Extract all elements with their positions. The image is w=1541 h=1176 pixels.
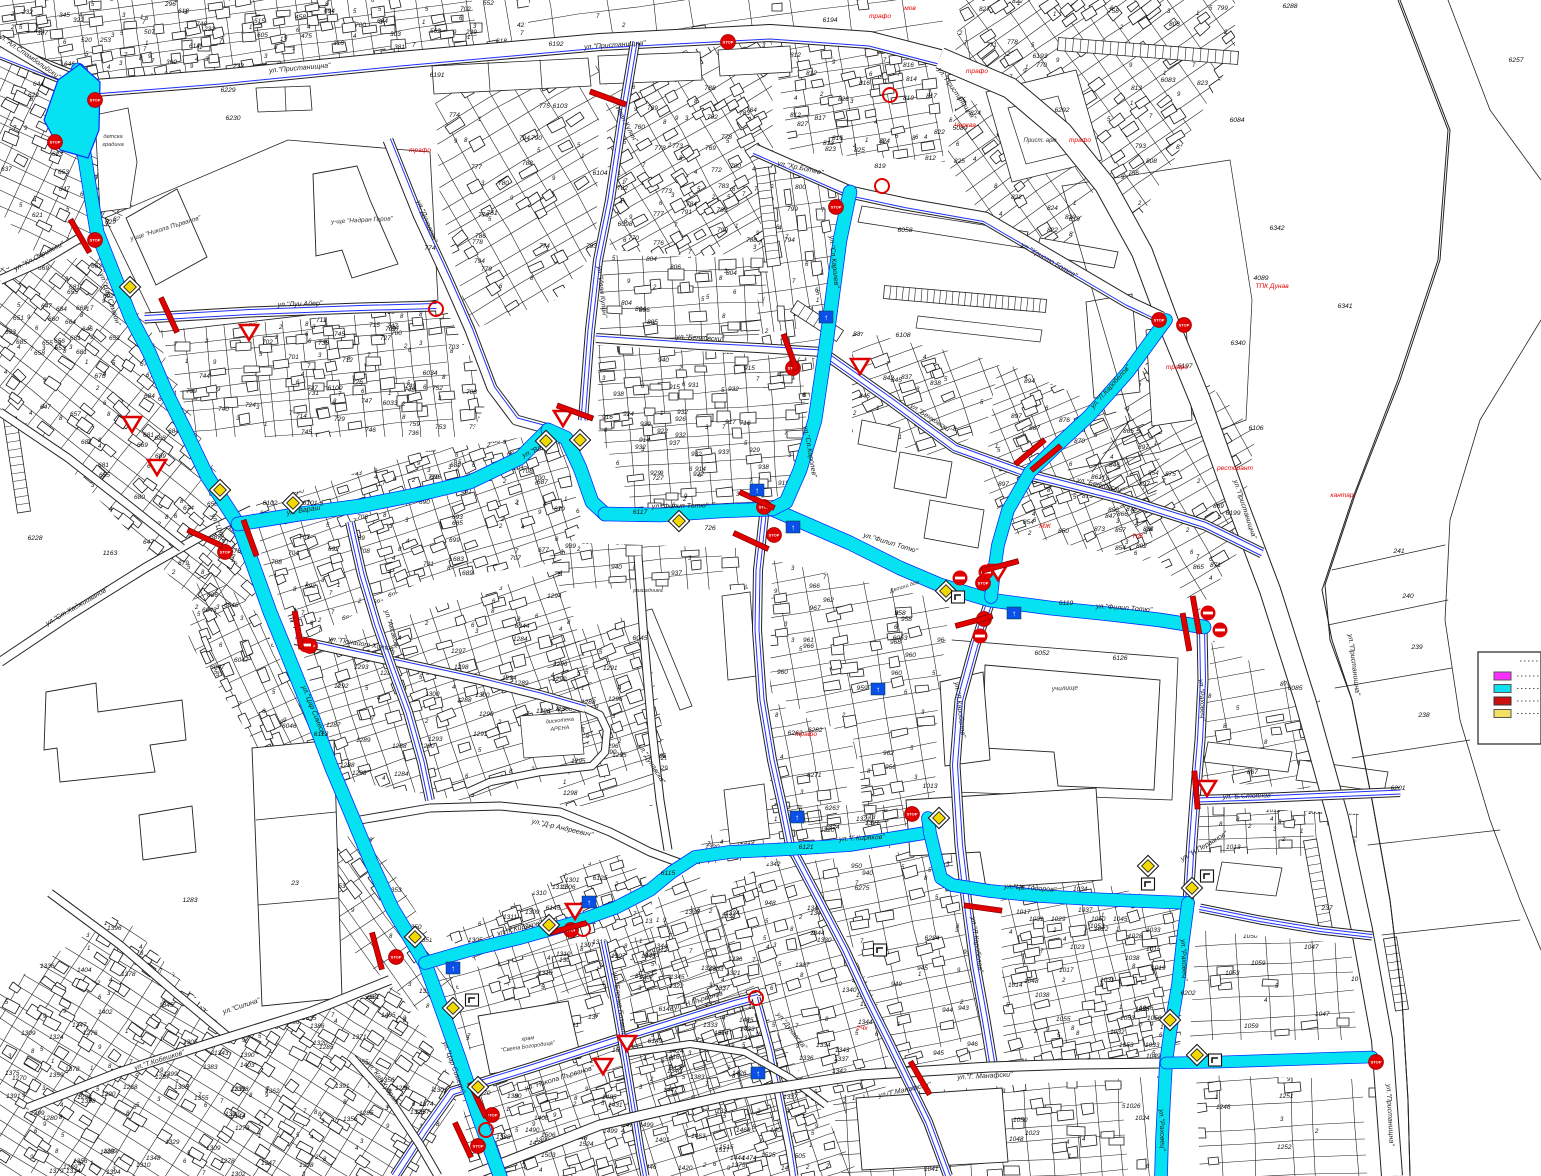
svg-text:822: 822 bbox=[1012, 0, 1023, 5]
svg-text:812: 812 bbox=[806, 70, 817, 77]
svg-text:684: 684 bbox=[56, 306, 67, 313]
svg-text:651: 651 bbox=[13, 315, 24, 322]
svg-text:1307: 1307 bbox=[611, 953, 626, 960]
svg-text:685: 685 bbox=[452, 520, 463, 527]
svg-text:1524: 1524 bbox=[579, 1141, 594, 1148]
svg-text:871: 871 bbox=[1210, 562, 1221, 569]
svg-text:1163: 1163 bbox=[103, 550, 118, 557]
svg-text:6145: 6145 bbox=[545, 905, 560, 912]
svg-text:939: 939 bbox=[565, 543, 576, 550]
svg-text:1024: 1024 bbox=[1135, 1115, 1150, 1122]
svg-text:1388: 1388 bbox=[496, 1134, 511, 1141]
svg-text:812: 812 bbox=[790, 52, 801, 59]
svg-text:6202: 6202 bbox=[1180, 990, 1195, 997]
svg-text:1: 1 bbox=[337, 583, 340, 589]
svg-text:кантар: кантар bbox=[1330, 492, 1353, 499]
svg-text:1: 1 bbox=[160, 1037, 163, 1043]
svg-text:1273: 1273 bbox=[235, 1125, 250, 1132]
svg-text:1292: 1292 bbox=[334, 683, 349, 690]
svg-text:2: 2 bbox=[403, 344, 408, 350]
svg-text:1048: 1048 bbox=[1009, 1136, 1024, 1143]
svg-text:240: 240 bbox=[1401, 593, 1414, 600]
svg-text:1047: 1047 bbox=[1315, 1011, 1330, 1018]
svg-text:778: 778 bbox=[721, 134, 732, 141]
svg-text:1330: 1330 bbox=[817, 937, 832, 944]
svg-text:1433: 1433 bbox=[740, 1026, 755, 1033]
svg-text:1: 1 bbox=[264, 422, 267, 428]
svg-text:1310: 1310 bbox=[556, 951, 571, 958]
svg-text:6046: 6046 bbox=[282, 723, 297, 730]
svg-text:6228: 6228 bbox=[27, 535, 42, 542]
svg-text:1: 1 bbox=[1101, 913, 1104, 919]
svg-text:1291: 1291 bbox=[473, 731, 488, 738]
svg-text:2: 2 bbox=[204, 339, 209, 345]
svg-text:710: 710 bbox=[428, 474, 439, 481]
svg-text:2: 2 bbox=[841, 713, 846, 719]
svg-text:1345: 1345 bbox=[670, 974, 685, 981]
svg-text:2: 2 bbox=[314, 1155, 319, 1161]
svg-text:795: 795 bbox=[716, 207, 728, 214]
svg-text:938: 938 bbox=[758, 464, 769, 471]
svg-text:681: 681 bbox=[69, 284, 80, 291]
svg-text:1026: 1026 bbox=[1126, 1103, 1141, 1110]
svg-text:1: 1 bbox=[125, 1029, 128, 1035]
svg-text:2: 2 bbox=[455, 466, 460, 472]
svg-text:870: 870 bbox=[1074, 438, 1085, 445]
svg-text:1: 1 bbox=[90, 1161, 93, 1167]
svg-text:816: 816 bbox=[903, 62, 914, 69]
svg-text:разсадника: разсадника bbox=[632, 588, 663, 594]
svg-text:1403: 1403 bbox=[240, 1062, 255, 1069]
svg-text:1359: 1359 bbox=[49, 1072, 64, 1079]
svg-text:669: 669 bbox=[76, 305, 87, 312]
svg-text:916: 916 bbox=[602, 414, 613, 421]
svg-text:6034: 6034 bbox=[422, 370, 437, 377]
svg-text:700: 700 bbox=[355, 22, 366, 29]
svg-text:↑: ↑ bbox=[876, 685, 880, 694]
svg-text:1032: 1032 bbox=[1110, 1029, 1125, 1036]
svg-text:1290: 1290 bbox=[479, 711, 494, 718]
svg-text:↑: ↑ bbox=[451, 964, 455, 973]
svg-text:819: 819 bbox=[903, 95, 914, 102]
svg-text:1416: 1416 bbox=[665, 1054, 680, 1061]
svg-text:940: 940 bbox=[611, 564, 622, 571]
svg-text:681: 681 bbox=[143, 432, 154, 439]
svg-text:758: 758 bbox=[1108, 8, 1119, 15]
svg-text:869: 869 bbox=[1213, 503, 1224, 510]
svg-text:1: 1 bbox=[249, 25, 252, 31]
svg-text:1: 1 bbox=[660, 411, 663, 417]
svg-text:1302: 1302 bbox=[231, 1171, 246, 1176]
svg-text:776: 776 bbox=[653, 240, 664, 247]
svg-text:674: 674 bbox=[183, 505, 194, 512]
svg-text:2: 2 bbox=[819, 92, 824, 98]
svg-text:805: 805 bbox=[647, 319, 658, 326]
svg-text:1: 1 bbox=[596, 967, 599, 973]
svg-text:6284: 6284 bbox=[924, 935, 939, 942]
svg-text:1285: 1285 bbox=[359, 1110, 374, 1117]
svg-text:1: 1 bbox=[51, 1059, 54, 1065]
svg-text:676: 676 bbox=[94, 373, 106, 380]
svg-text:ТПК Дунав: ТПК Дунав bbox=[1255, 283, 1289, 290]
svg-text:232: 232 bbox=[21, 9, 33, 16]
svg-text:1: 1 bbox=[388, 391, 391, 397]
svg-text:770: 770 bbox=[1036, 62, 1047, 69]
svg-text:1325: 1325 bbox=[410, 1109, 425, 1116]
svg-text:637: 637 bbox=[1, 166, 12, 173]
svg-text:1310: 1310 bbox=[136, 1162, 151, 1169]
svg-text:6144: 6144 bbox=[230, 1113, 245, 1120]
svg-text:1334: 1334 bbox=[816, 1042, 831, 1049]
svg-text:823: 823 bbox=[825, 146, 836, 153]
svg-text:1401: 1401 bbox=[655, 1137, 670, 1144]
svg-text:1406: 1406 bbox=[534, 1115, 549, 1122]
svg-text:1312: 1312 bbox=[652, 947, 667, 954]
svg-text:1059: 1059 bbox=[1244, 1023, 1259, 1030]
svg-text:1: 1 bbox=[258, 1134, 261, 1140]
svg-text:944: 944 bbox=[942, 1007, 953, 1014]
svg-text:788: 788 bbox=[746, 237, 757, 244]
svg-text:724: 724 bbox=[245, 402, 256, 409]
svg-text:708: 708 bbox=[271, 559, 282, 566]
svg-text:808: 808 bbox=[1146, 158, 1157, 165]
svg-text:1246: 1246 bbox=[1216, 1104, 1231, 1111]
svg-text:804: 804 bbox=[646, 256, 657, 263]
svg-text:трафо: трафо bbox=[409, 147, 431, 154]
svg-text:1293: 1293 bbox=[428, 736, 443, 743]
svg-text:837: 837 bbox=[901, 374, 912, 381]
svg-text:777: 777 bbox=[471, 164, 482, 171]
svg-text:6121: 6121 bbox=[798, 844, 813, 851]
svg-text:2: 2 bbox=[711, 195, 716, 201]
svg-text:1390: 1390 bbox=[240, 1052, 255, 1059]
svg-text:806: 806 bbox=[670, 264, 681, 271]
svg-text:813: 813 bbox=[1131, 85, 1142, 92]
svg-text:STOP: STOP bbox=[50, 140, 61, 145]
svg-text:1033: 1033 bbox=[1146, 927, 1161, 934]
svg-text:1333: 1333 bbox=[709, 966, 724, 973]
svg-text:764: 764 bbox=[746, 107, 757, 114]
svg-text:915: 915 bbox=[669, 384, 680, 391]
svg-text:780: 780 bbox=[498, 180, 509, 187]
svg-text:783: 783 bbox=[718, 183, 729, 190]
svg-text:708: 708 bbox=[466, 389, 477, 396]
svg-text:1375: 1375 bbox=[731, 1162, 746, 1169]
svg-text:6103: 6103 bbox=[552, 103, 567, 110]
svg-text:932: 932 bbox=[728, 386, 739, 393]
svg-text:959: 959 bbox=[856, 685, 868, 692]
svg-text:1280: 1280 bbox=[42, 1115, 57, 1122]
svg-text:1348: 1348 bbox=[146, 1155, 161, 1162]
svg-text:1: 1 bbox=[185, 359, 188, 365]
svg-text:2: 2 bbox=[1314, 1129, 1319, 1135]
svg-text:1053: 1053 bbox=[1120, 1015, 1135, 1022]
svg-text:727: 727 bbox=[652, 475, 664, 482]
svg-text:876: 876 bbox=[1059, 417, 1070, 424]
svg-text:трафо: трафо bbox=[869, 13, 891, 20]
svg-text:693: 693 bbox=[452, 514, 463, 521]
svg-text:681: 681 bbox=[81, 439, 92, 446]
svg-text:664: 664 bbox=[65, 319, 76, 326]
svg-text:STOP: STOP bbox=[220, 550, 231, 555]
svg-text:1014: 1014 bbox=[1008, 982, 1023, 989]
svg-text:775: 775 bbox=[539, 103, 550, 110]
svg-text:458: 458 bbox=[295, 14, 306, 21]
svg-text:771: 771 bbox=[986, 42, 997, 49]
svg-text:562: 562 bbox=[430, 28, 441, 35]
svg-text:1310: 1310 bbox=[538, 970, 553, 977]
svg-text:825: 825 bbox=[854, 147, 865, 154]
svg-text:2: 2 bbox=[678, 366, 683, 372]
svg-text:1284: 1284 bbox=[394, 771, 409, 778]
svg-text:846: 846 bbox=[1109, 462, 1120, 469]
svg-text:1048: 1048 bbox=[1024, 978, 1039, 985]
svg-text:726: 726 bbox=[352, 379, 363, 386]
svg-text:6044: 6044 bbox=[514, 623, 529, 630]
svg-text:714: 714 bbox=[296, 413, 307, 420]
svg-text:2: 2 bbox=[502, 479, 507, 485]
svg-text:653: 653 bbox=[58, 169, 69, 176]
svg-text:6192: 6192 bbox=[548, 41, 563, 48]
svg-text:2: 2 bbox=[576, 547, 581, 553]
svg-text:239: 239 bbox=[1410, 644, 1423, 651]
svg-text:1: 1 bbox=[1300, 829, 1303, 835]
svg-text:1517: 1517 bbox=[715, 1147, 730, 1154]
svg-text:804: 804 bbox=[621, 300, 632, 307]
svg-text:2: 2 bbox=[758, 1139, 763, 1145]
svg-text:1514: 1514 bbox=[714, 1030, 729, 1037]
svg-text:789: 789 bbox=[647, 105, 658, 112]
svg-text:6113: 6113 bbox=[314, 731, 329, 738]
svg-text:1: 1 bbox=[1217, 515, 1220, 521]
svg-text:2: 2 bbox=[852, 411, 857, 417]
svg-text:↑: ↑ bbox=[587, 898, 591, 907]
svg-text:1321: 1321 bbox=[856, 816, 871, 823]
svg-text:552: 552 bbox=[483, 0, 494, 7]
svg-text:804: 804 bbox=[635, 306, 646, 313]
svg-text:962: 962 bbox=[883, 750, 894, 757]
svg-text:773: 773 bbox=[661, 188, 672, 195]
svg-text:6046: 6046 bbox=[224, 602, 239, 609]
svg-text:6047: 6047 bbox=[234, 657, 249, 664]
svg-text:933: 933 bbox=[718, 449, 729, 456]
svg-text:946: 946 bbox=[967, 1041, 978, 1048]
svg-text:794: 794 bbox=[784, 237, 795, 244]
svg-text:875: 875 bbox=[1165, 471, 1176, 478]
svg-text:2: 2 bbox=[10, 12, 15, 18]
svg-text:1383: 1383 bbox=[690, 1074, 705, 1081]
svg-text:737: 737 bbox=[307, 385, 318, 392]
svg-text:381: 381 bbox=[394, 44, 405, 51]
svg-text:1029: 1029 bbox=[1051, 916, 1066, 923]
svg-text:241: 241 bbox=[1392, 548, 1405, 555]
svg-text:794: 794 bbox=[474, 258, 485, 265]
svg-text:1288: 1288 bbox=[340, 762, 355, 769]
svg-text:1324: 1324 bbox=[825, 824, 840, 831]
svg-text:960: 960 bbox=[905, 652, 916, 659]
svg-text:1013: 1013 bbox=[922, 783, 937, 790]
svg-text:778: 778 bbox=[654, 145, 666, 152]
svg-text:1324: 1324 bbox=[49, 1034, 64, 1041]
svg-text:1378: 1378 bbox=[65, 1066, 80, 1073]
svg-text:2: 2 bbox=[614, 882, 619, 888]
svg-text:ресторант: ресторант bbox=[1216, 465, 1254, 472]
svg-text:702: 702 bbox=[262, 339, 273, 346]
svg-text:1391: 1391 bbox=[6, 1093, 21, 1100]
svg-text:1405: 1405 bbox=[381, 1012, 396, 1019]
svg-text:707: 707 bbox=[299, 534, 310, 541]
svg-text:729: 729 bbox=[334, 416, 345, 423]
svg-text:6201: 6201 bbox=[1390, 785, 1405, 792]
svg-text:детска: детска bbox=[103, 134, 122, 140]
svg-text:894: 894 bbox=[1024, 378, 1035, 385]
svg-text:STOP: STOP bbox=[978, 581, 989, 586]
svg-text:822: 822 bbox=[1011, 194, 1022, 201]
svg-text:701: 701 bbox=[288, 354, 299, 361]
svg-text:1: 1 bbox=[467, 35, 470, 41]
svg-text:684: 684 bbox=[144, 393, 155, 400]
svg-text:1050: 1050 bbox=[1013, 1117, 1028, 1124]
svg-text:857: 857 bbox=[1115, 527, 1126, 534]
svg-text:↑: ↑ bbox=[1012, 609, 1016, 618]
svg-text:253: 253 bbox=[99, 37, 111, 44]
svg-text:1336: 1336 bbox=[728, 956, 743, 963]
svg-text:6271: 6271 bbox=[807, 772, 822, 779]
svg-text:759: 759 bbox=[409, 421, 420, 428]
svg-text:STOP: STOP bbox=[1154, 318, 1165, 323]
svg-text:6106: 6106 bbox=[1248, 425, 1263, 432]
svg-text:1297: 1297 bbox=[451, 648, 466, 655]
svg-text:778: 778 bbox=[472, 239, 483, 246]
svg-text:6199: 6199 bbox=[1225, 510, 1240, 517]
svg-text:1391: 1391 bbox=[335, 1083, 350, 1090]
svg-text:1525: 1525 bbox=[761, 1152, 776, 1159]
svg-text:2: 2 bbox=[357, 599, 362, 605]
svg-text:2: 2 bbox=[708, 909, 713, 915]
svg-text:917: 917 bbox=[725, 419, 736, 426]
svg-text:1028: 1028 bbox=[1128, 933, 1143, 940]
svg-text:727: 727 bbox=[380, 335, 391, 342]
svg-text:1371: 1371 bbox=[352, 1034, 367, 1041]
svg-text:702: 702 bbox=[460, 6, 471, 13]
svg-text:2: 2 bbox=[1052, 928, 1057, 934]
svg-text:774: 774 bbox=[449, 112, 460, 119]
svg-text:1023: 1023 bbox=[1025, 1130, 1040, 1137]
svg-text:897: 897 bbox=[1138, 444, 1149, 451]
svg-text:6342: 6342 bbox=[1269, 225, 1284, 232]
svg-text:1: 1 bbox=[735, 224, 738, 230]
svg-text:6257: 6257 bbox=[1508, 57, 1523, 64]
svg-text:662: 662 bbox=[91, 263, 102, 270]
svg-text:1347: 1347 bbox=[261, 1160, 276, 1167]
svg-text:1038: 1038 bbox=[1125, 955, 1140, 962]
svg-text:1300: 1300 bbox=[475, 692, 490, 699]
svg-text:6127: 6127 bbox=[669, 1065, 684, 1072]
svg-text:683: 683 bbox=[453, 556, 464, 563]
svg-text:660: 660 bbox=[48, 316, 59, 323]
svg-text:1053: 1053 bbox=[1119, 1042, 1134, 1049]
svg-text:2: 2 bbox=[1006, 52, 1011, 58]
svg-text:238: 238 bbox=[1417, 712, 1430, 719]
svg-text:6146: 6146 bbox=[658, 1006, 673, 1013]
svg-text:966: 966 bbox=[809, 583, 820, 590]
svg-text:1: 1 bbox=[1130, 101, 1133, 107]
svg-text:1267: 1267 bbox=[155, 1074, 170, 1081]
svg-text:937: 937 bbox=[671, 570, 682, 577]
svg-text:803: 803 bbox=[1169, 21, 1180, 28]
svg-text:680: 680 bbox=[134, 494, 145, 501]
svg-text:1: 1 bbox=[42, 404, 45, 410]
svg-text:740: 740 bbox=[218, 406, 229, 413]
svg-text:800: 800 bbox=[795, 184, 806, 191]
svg-text:746: 746 bbox=[196, 21, 207, 28]
svg-text:трафо: трафо bbox=[1069, 137, 1091, 144]
svg-text:967: 967 bbox=[809, 605, 821, 612]
svg-text:962: 962 bbox=[823, 597, 834, 604]
svg-text:873: 873 bbox=[1094, 526, 1105, 533]
svg-text:816: 816 bbox=[859, 80, 870, 87]
svg-text:6100: 6100 bbox=[327, 385, 342, 392]
svg-text:1291: 1291 bbox=[603, 665, 618, 672]
svg-text:↑: ↑ bbox=[755, 486, 759, 495]
svg-text:854: 854 bbox=[1115, 545, 1126, 552]
svg-text:760: 760 bbox=[634, 124, 645, 131]
svg-text:892: 892 bbox=[1136, 543, 1147, 550]
svg-text:692: 692 bbox=[328, 546, 339, 553]
svg-text:6193: 6193 bbox=[1032, 53, 1047, 60]
svg-text:865: 865 bbox=[1123, 428, 1134, 435]
svg-text:1329: 1329 bbox=[165, 1139, 180, 1146]
svg-text:6149: 6149 bbox=[647, 1038, 662, 1045]
svg-text:6033: 6033 bbox=[382, 400, 397, 407]
svg-text:296: 296 bbox=[164, 1, 176, 8]
svg-text:STOP: STOP bbox=[1179, 323, 1190, 328]
svg-text:790: 790 bbox=[531, 135, 542, 142]
svg-text:2: 2 bbox=[96, 981, 101, 987]
svg-text:788: 788 bbox=[704, 85, 716, 92]
svg-text:1055: 1055 bbox=[1056, 1016, 1071, 1023]
svg-text:6230: 6230 bbox=[225, 115, 240, 122]
svg-text:↑: ↑ bbox=[795, 813, 799, 822]
svg-text:1268: 1268 bbox=[123, 1084, 138, 1091]
svg-text:924: 924 bbox=[623, 411, 634, 418]
svg-text:6043: 6043 bbox=[202, 607, 217, 614]
svg-text:897: 897 bbox=[1011, 413, 1022, 420]
svg-text:1: 1 bbox=[816, 298, 819, 304]
svg-text:940: 940 bbox=[862, 870, 873, 877]
svg-text:1017: 1017 bbox=[1059, 967, 1074, 974]
svg-text:791: 791 bbox=[681, 209, 692, 216]
svg-text:2: 2 bbox=[702, 1163, 707, 1169]
svg-text:770: 770 bbox=[628, 235, 639, 242]
svg-text:753: 753 bbox=[435, 424, 446, 431]
svg-text:726: 726 bbox=[704, 525, 716, 532]
svg-text:1: 1 bbox=[1053, 12, 1056, 18]
svg-text:1294: 1294 bbox=[547, 593, 562, 600]
svg-text:950: 950 bbox=[851, 863, 862, 870]
svg-text:1045: 1045 bbox=[1113, 916, 1128, 923]
svg-text:782: 782 bbox=[617, 185, 628, 192]
svg-text:1355: 1355 bbox=[194, 1095, 209, 1102]
svg-text:STOP: STOP bbox=[723, 40, 734, 45]
svg-text:1: 1 bbox=[263, 1114, 266, 1120]
svg-text:1251: 1251 bbox=[1279, 1093, 1294, 1100]
svg-text:2: 2 bbox=[1247, 824, 1252, 830]
svg-text:653: 653 bbox=[5, 329, 16, 336]
svg-text:1469: 1469 bbox=[736, 1127, 751, 1134]
svg-text:822: 822 bbox=[934, 129, 945, 136]
svg-text:940: 940 bbox=[658, 357, 669, 364]
